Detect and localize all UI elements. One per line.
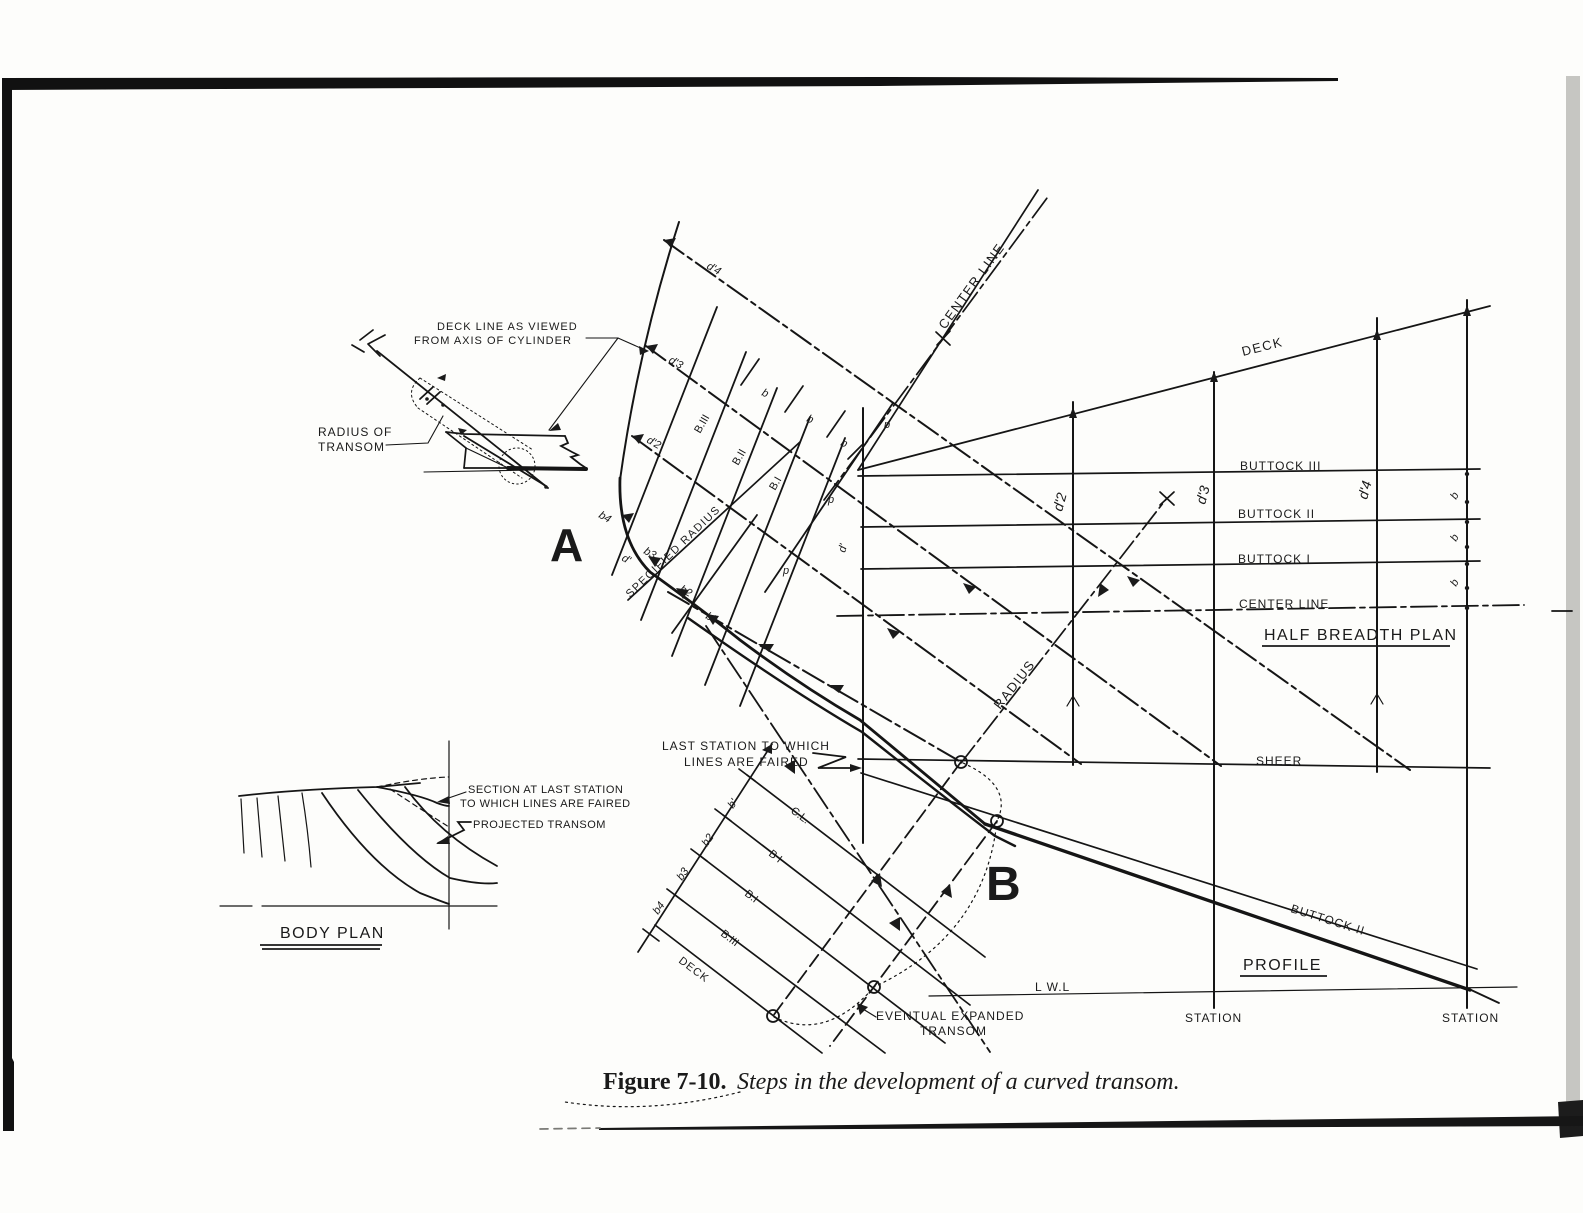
- svg-text:SECTION AT LAST STATION: SECTION AT LAST STATION: [468, 784, 623, 796]
- svg-text:A: A: [550, 519, 583, 571]
- svg-text:HALF BREADTH PLAN: HALF BREADTH PLAN: [1264, 627, 1458, 644]
- svg-text:p: p: [782, 565, 789, 577]
- svg-text:PROJECTED TRANSOM: PROJECTED TRANSOM: [473, 819, 606, 831]
- svg-text:TRANSOM: TRANSOM: [920, 1024, 987, 1038]
- svg-text:STATION: STATION: [1185, 1011, 1242, 1025]
- svg-text:p: p: [827, 494, 834, 506]
- svg-text:STATION: STATION: [1442, 1011, 1499, 1025]
- svg-text:DECK LINE AS VIEWED: DECK LINE AS VIEWED: [437, 321, 578, 333]
- svg-text:L W.L: L W.L: [1035, 980, 1070, 994]
- svg-text:TO WHICH LINES ARE FAIRED: TO WHICH LINES ARE FAIRED: [460, 798, 631, 810]
- svg-text:FROM AXIS OF CYLINDER: FROM AXIS OF CYLINDER: [414, 335, 572, 347]
- svg-text:RADIUS OF: RADIUS OF: [318, 425, 392, 439]
- svg-text:Figure 7-10.: Figure 7-10.: [603, 1069, 727, 1095]
- svg-text:TRANSOM: TRANSOM: [318, 440, 385, 454]
- svg-text:CENTER LINE: CENTER LINE: [1239, 597, 1329, 611]
- svg-text:LINES ARE FAIRED: LINES ARE FAIRED: [684, 755, 809, 769]
- svg-text:BUTTOCK I: BUTTOCK I: [1238, 552, 1311, 566]
- svg-text:Steps in the development of a: Steps in the development of a curved tra…: [737, 1069, 1180, 1095]
- svg-text:B: B: [986, 858, 1021, 911]
- svg-text:BUTTOCK III: BUTTOCK III: [1240, 459, 1321, 473]
- svg-text:BODY PLAN: BODY PLAN: [280, 925, 385, 942]
- svg-text:p: p: [883, 419, 890, 431]
- svg-text:PROFILE: PROFILE: [1243, 957, 1322, 974]
- svg-text:LAST STATION TO WHICH: LAST STATION TO WHICH: [662, 739, 830, 753]
- svg-text:BUTTOCK II: BUTTOCK II: [1238, 507, 1315, 521]
- svg-text:SHEER: SHEER: [1256, 754, 1302, 768]
- svg-text:EVENTUAL EXPANDED: EVENTUAL EXPANDED: [876, 1009, 1024, 1023]
